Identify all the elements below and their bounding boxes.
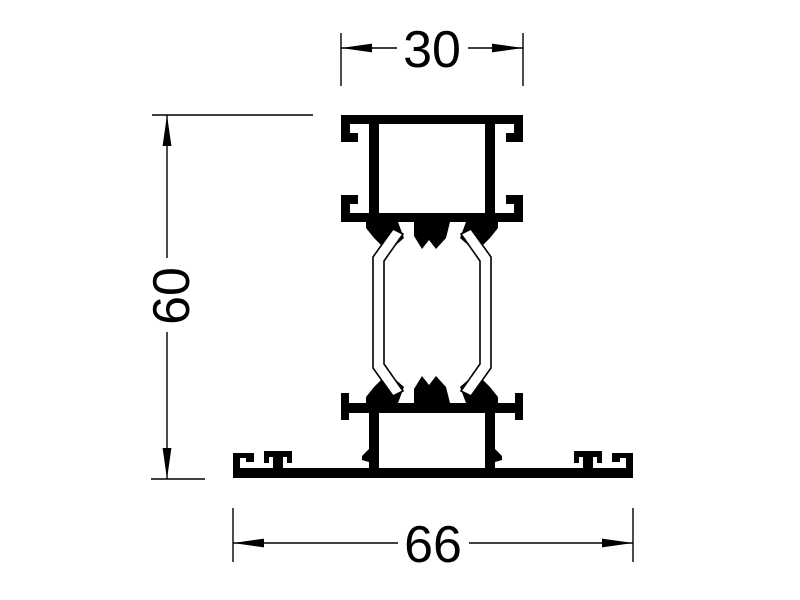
drawing-canvas: 30 60 66 <box>0 0 800 600</box>
dimension-height: 60 <box>143 115 313 479</box>
tooth-center-fangs <box>414 376 450 403</box>
clip-stem <box>583 456 593 468</box>
arrowhead-down-icon <box>163 448 172 479</box>
dimension-label-bottom-width: 66 <box>404 516 462 574</box>
profile-upper-section <box>341 115 523 222</box>
upper-wall-left <box>369 124 379 213</box>
strut-left <box>373 229 403 396</box>
lower-wall-tab-right <box>495 449 502 462</box>
upper-bottom-hook-left <box>341 195 358 213</box>
arrowhead-right-icon <box>492 44 523 53</box>
lower-wall-tab-left <box>362 449 369 462</box>
dimension-label-top-width: 30 <box>403 21 461 79</box>
upper-bottom-hook-right <box>506 195 523 213</box>
strut-right <box>461 229 491 396</box>
base-end-lip-right <box>612 453 633 468</box>
upper-bottom-flange <box>341 213 523 222</box>
dimension-top-width: 30 <box>341 21 523 86</box>
base-clip-stem-left <box>264 451 292 468</box>
clip-stem <box>273 456 283 468</box>
profile-cross-section-drawing: 30 60 66 <box>0 0 800 600</box>
thermal-break-struts <box>373 229 491 396</box>
base-flange <box>233 468 633 478</box>
upper-wall-right <box>485 124 495 213</box>
dimension-label-height: 60 <box>143 267 201 325</box>
base-end-lip-left <box>233 453 254 468</box>
clip-tab <box>264 456 269 463</box>
arrowhead-left-icon <box>233 539 264 548</box>
upper-top-hook-left <box>341 124 358 142</box>
lower-wall-right <box>485 403 495 478</box>
clip-tab <box>574 456 579 463</box>
profile-lower-section <box>233 393 633 478</box>
arrowhead-right-icon <box>602 539 633 548</box>
crossbar-end-cap-right <box>515 393 523 420</box>
base-clip-stem-right <box>574 451 602 468</box>
upper-top-hook-right <box>506 124 523 142</box>
dimension-bottom-width: 66 <box>233 508 633 574</box>
tooth-center-fangs <box>414 222 450 249</box>
lower-wall-left <box>369 403 379 478</box>
crossbar-end-cap-left <box>341 393 349 420</box>
arrowhead-up-icon <box>163 115 172 146</box>
clip-tab <box>597 456 602 463</box>
clip-tab <box>287 456 292 463</box>
arrowhead-left-icon <box>341 44 372 53</box>
upper-top-flange <box>341 115 523 124</box>
